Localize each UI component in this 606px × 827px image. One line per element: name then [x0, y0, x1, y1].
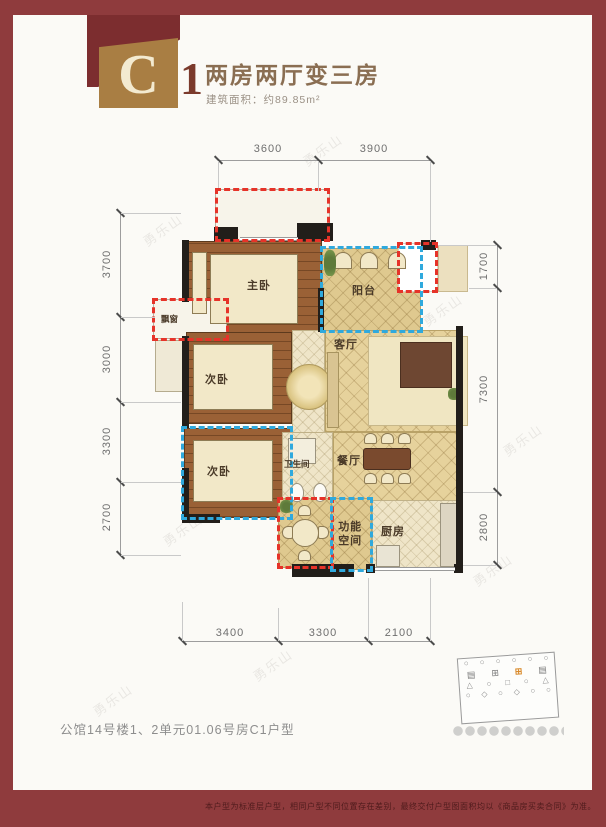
- dim-line-left: [120, 213, 121, 555]
- label-bay-window: 飘窗: [161, 313, 178, 325]
- badge-letter: C: [118, 47, 158, 103]
- wall-segment: [454, 564, 463, 573]
- dining-chair: [364, 473, 377, 484]
- dining-chair: [364, 433, 377, 444]
- dim-line-right: [497, 245, 498, 565]
- dining-chair: [398, 433, 411, 444]
- wall-segment: [182, 240, 189, 302]
- dim-line-bottom: [182, 641, 430, 642]
- dim-line-top: [218, 160, 430, 161]
- dim-bottom-2: 3300: [295, 627, 351, 639]
- dim-top-1: 3600: [240, 143, 296, 155]
- unit-description: 公馆14号楼1、2单元01.06号房C1户型: [60, 719, 295, 738]
- dim-left-4: 2700: [101, 497, 113, 537]
- dim-ext: [218, 161, 219, 188]
- dim-right-2: 7300: [478, 369, 490, 409]
- dining-chair: [398, 473, 411, 484]
- dim-right-1: 1700: [478, 246, 490, 286]
- label-master-bedroom: 主卧: [247, 277, 271, 293]
- label-multi-space: 功能空间: [337, 521, 363, 549]
- dim-left-3: 3300: [101, 421, 113, 461]
- kitchen-sink: [376, 545, 400, 567]
- building-area-label: 建筑面积：约89.85m²: [206, 92, 321, 107]
- dim-right-3: 2800: [478, 507, 490, 547]
- coffee-table: [400, 342, 452, 388]
- dim-top-2: 3900: [346, 143, 402, 155]
- dim-ext: [121, 482, 181, 483]
- dining-chair: [381, 473, 394, 484]
- dim-ext: [463, 565, 497, 566]
- label-balcony: 阳台: [352, 282, 376, 298]
- dim-ext: [368, 578, 369, 641]
- minimap-tree-border: [452, 726, 564, 737]
- disclaimer-text: 本户型为标准层户型，相同户型不同位置存在差别，最终交付户型图面积均以《商品房买卖…: [176, 801, 596, 812]
- kitchen-window: [375, 567, 455, 571]
- wall-segment: [182, 336, 189, 428]
- label-kitchen: 厨房: [381, 523, 405, 539]
- highlight-red-top-balcony: [215, 188, 330, 242]
- dim-ext: [121, 402, 181, 403]
- dining-table: [363, 448, 411, 470]
- tv-cabinet: [327, 352, 339, 428]
- badge-number: 1: [180, 56, 203, 102]
- dim-ext: [278, 608, 279, 641]
- label-bathroom: 卫生间: [284, 458, 310, 470]
- dim-ext: [430, 578, 431, 641]
- dim-bottom-1: 3400: [202, 627, 258, 639]
- highlight-red-multi: [277, 497, 334, 569]
- dim-ext: [121, 317, 155, 318]
- dim-ext: [121, 555, 181, 556]
- dim-ext: [469, 288, 497, 289]
- dim-bottom-3: 2100: [371, 627, 427, 639]
- dim-ext: [430, 161, 431, 242]
- label-living: 客厅: [334, 336, 358, 352]
- dim-ext: [121, 213, 181, 214]
- label-bedroom3: 次卧: [207, 463, 231, 479]
- site-location-map: ○○○○○○ ▤⊞⊞▤ △○□○△ ○◇○◇○○: [457, 652, 559, 725]
- label-bedroom2: 次卧: [205, 371, 229, 387]
- wall-segment: [456, 326, 463, 572]
- page-title: 两房两厅变三房: [205, 56, 380, 90]
- dining-chair: [381, 433, 394, 444]
- dim-ext: [182, 602, 183, 641]
- room-top-right-box: [438, 245, 468, 292]
- label-dining: 餐厅: [337, 452, 361, 468]
- unit-type-badge: C: [99, 38, 178, 108]
- dim-left-2: 3000: [101, 339, 113, 379]
- foyer-medallion: [286, 364, 332, 410]
- floorplan-page: 勇乐山 勇乐山 勇乐山 勇乐山 勇乐山 勇乐山 勇乐山 勇乐山 C 1 两房两厅…: [0, 0, 606, 827]
- dim-left-1: 3700: [101, 244, 113, 284]
- dim-ext: [463, 492, 497, 493]
- dim-ext: [318, 161, 319, 191]
